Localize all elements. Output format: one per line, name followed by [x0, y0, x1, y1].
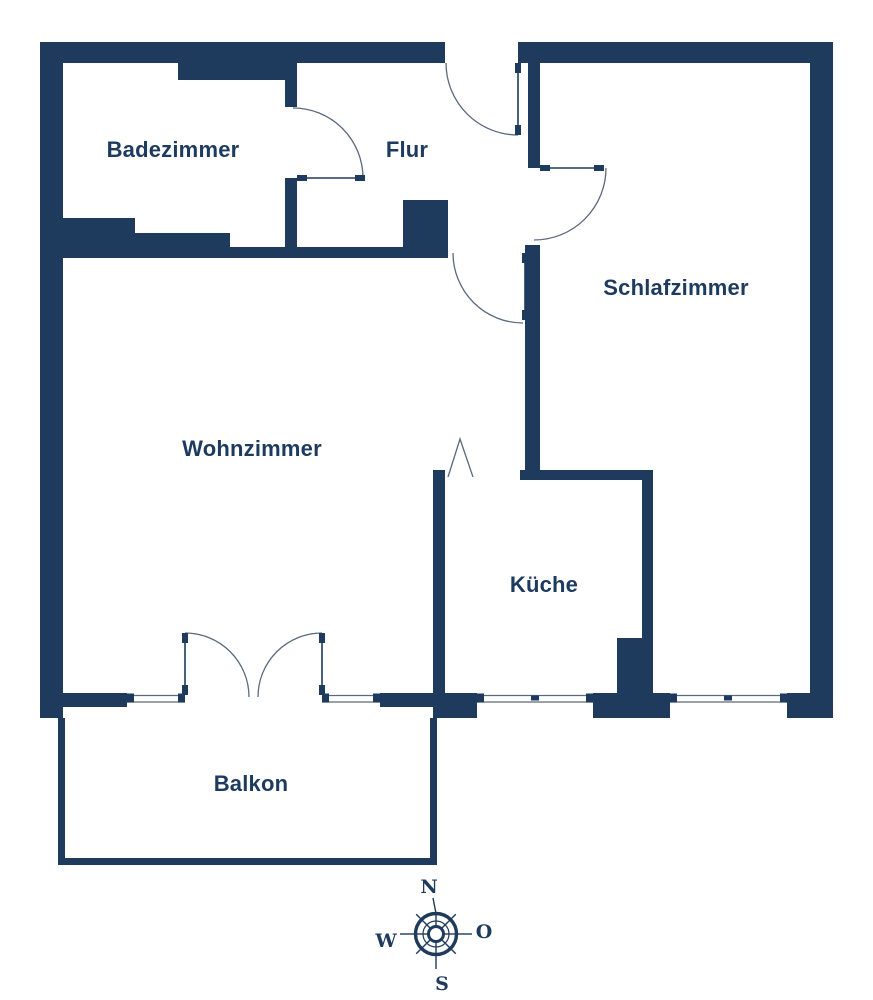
wall-segment	[285, 63, 297, 107]
compass-spoke	[416, 914, 421, 919]
compass-ring	[429, 927, 444, 942]
compass-spoke	[416, 949, 421, 954]
wall-segment	[63, 247, 448, 258]
room-label-kueche: Küche	[510, 572, 578, 597]
compass-letter-W: W	[374, 930, 397, 952]
balcony-door-right-cap	[319, 685, 325, 695]
compass-letter-S: S	[435, 973, 449, 995]
compass-letter-N: N	[420, 876, 437, 898]
balcony-door-left-cap	[182, 685, 188, 695]
bedroom-door-swing-arc	[534, 168, 606, 240]
wall-segment	[40, 42, 63, 718]
living-room-door-cap	[522, 310, 528, 320]
compass-spoke	[433, 898, 436, 914]
walls-layer	[40, 42, 833, 865]
window-mullion-tick	[724, 696, 732, 701]
wall-segment	[135, 233, 230, 247]
balcony-door-right-cap	[319, 633, 325, 643]
window-frame-cap	[780, 694, 787, 703]
entrance-door-swing-arc	[446, 63, 518, 135]
balcony-door-right-swing-arc	[258, 633, 322, 697]
living-room-door-swing-arc	[453, 253, 523, 323]
compass-spoke	[451, 914, 456, 919]
wall-segment	[63, 693, 127, 707]
window-frame-cap	[586, 694, 593, 703]
wall-segment	[430, 718, 437, 865]
floorplan-svg: BadezimmerFlurSchlafzimmerWohnzimmerKüch…	[0, 0, 873, 1000]
compass-rose: NOSW	[374, 876, 492, 995]
wall-segment	[520, 470, 653, 480]
balcony-door-left-cap	[182, 633, 188, 643]
wall-segment	[58, 718, 65, 865]
compass-spoke	[423, 940, 431, 948]
room-label-schlafzimmer: Schlafzimmer	[603, 275, 749, 300]
wall-segment	[58, 858, 437, 865]
bedroom-door-cap	[594, 165, 604, 171]
wall-segment	[617, 638, 642, 693]
living-room-door-cap	[522, 253, 528, 263]
balcony-door-left-swing-arc	[185, 633, 249, 697]
bathroom-door-swing-arc	[293, 108, 363, 178]
compass-spoke	[451, 949, 456, 954]
compass-letter-O: O	[476, 921, 493, 943]
wall-segment	[528, 63, 540, 168]
wall-segment	[810, 42, 833, 718]
wall-segment	[285, 178, 297, 258]
compass-spoke	[423, 921, 431, 929]
wall-segment	[642, 480, 653, 693]
wall-segment	[40, 42, 445, 63]
wall-segment	[403, 200, 448, 247]
room-label-badezimmer: Badezimmer	[107, 137, 240, 162]
bathroom-door-cap	[355, 175, 365, 181]
compass-spoke	[442, 940, 450, 948]
entrance-door-cap	[515, 63, 521, 73]
window-frame-cap	[127, 694, 134, 703]
kitchen-opening-marker	[448, 439, 473, 477]
floorplan-canvas: BadezimmerFlurSchlafzimmerWohnzimmerKüch…	[0, 0, 873, 1000]
wall-segment	[787, 693, 833, 718]
wall-segment	[518, 42, 833, 63]
window-frame-cap	[373, 694, 380, 703]
wall-segment	[63, 218, 135, 247]
entrance-door-cap	[515, 125, 521, 135]
window-frame-cap	[670, 694, 677, 703]
wall-segment	[380, 693, 433, 707]
wall-segment	[178, 63, 297, 80]
bedroom-door-cap	[540, 165, 550, 171]
wall-segment	[433, 470, 445, 693]
wall-segment	[593, 693, 670, 718]
room-label-flur: Flur	[386, 137, 429, 162]
wall-segment	[525, 245, 540, 470]
window-frame-cap	[477, 694, 484, 703]
bathroom-door-cap	[297, 175, 307, 181]
window-mullion-tick	[531, 696, 539, 701]
compass-spoke	[442, 921, 450, 929]
room-label-wohnzimmer: Wohnzimmer	[182, 436, 322, 461]
room-label-balkon: Balkon	[214, 771, 289, 796]
wall-segment	[433, 693, 477, 718]
